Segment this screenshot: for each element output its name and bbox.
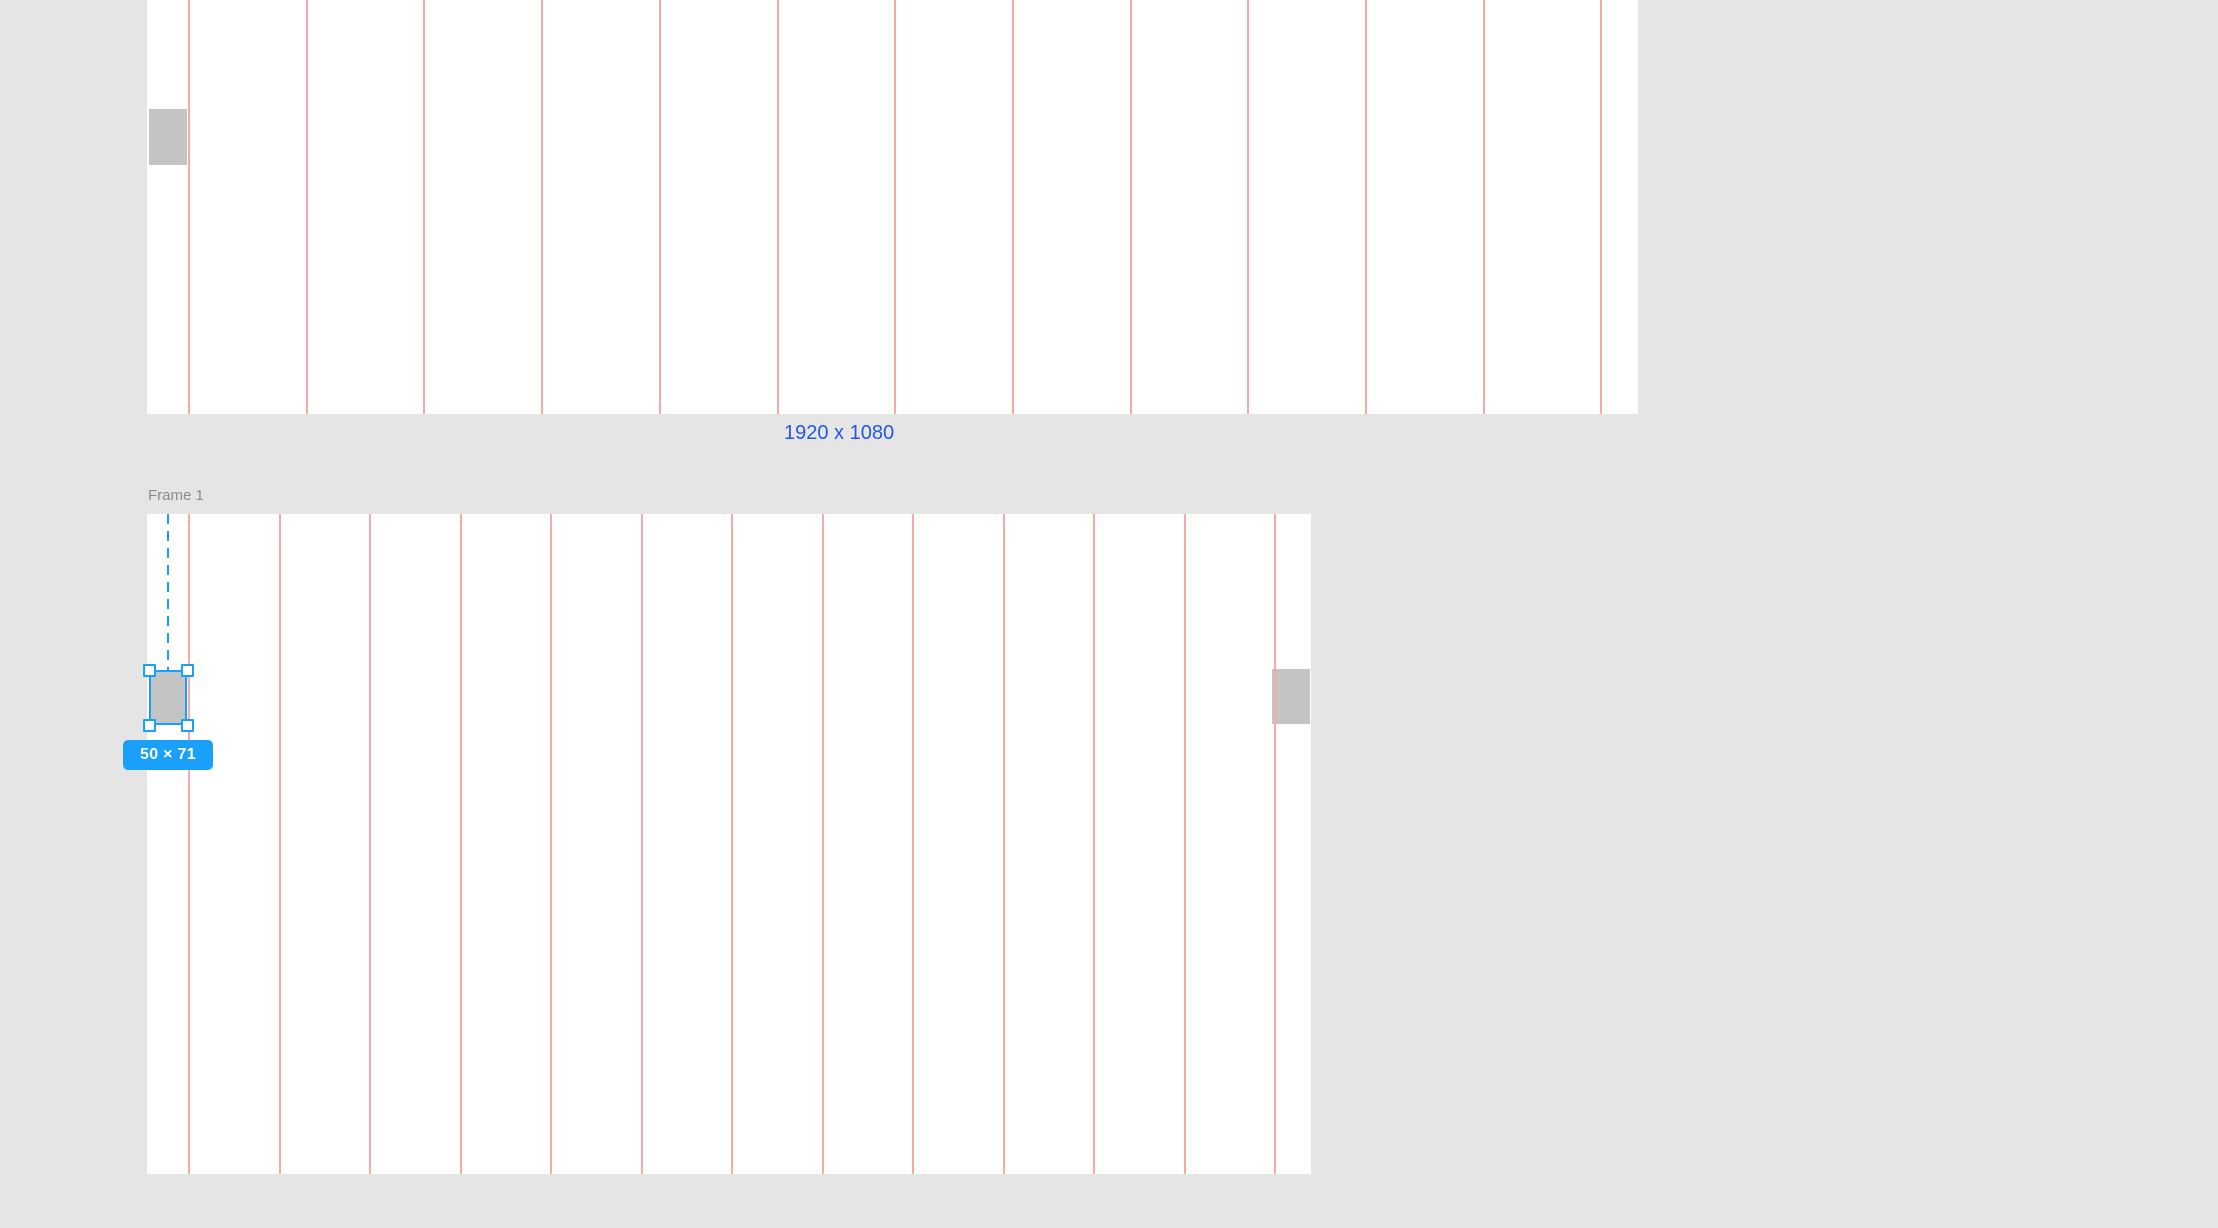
grid-column-line xyxy=(894,0,896,414)
grid-column-line xyxy=(188,514,190,1174)
gray-rectangle[interactable] xyxy=(1272,669,1310,724)
grid-column-line xyxy=(731,514,733,1174)
selection-size-badge: 50 × 71 xyxy=(123,740,213,770)
grid-column-line xyxy=(1012,0,1014,414)
grid-column-line xyxy=(1274,514,1276,1174)
grid-column-line xyxy=(659,0,661,414)
grid-column-line xyxy=(1130,0,1132,414)
grid-column-line xyxy=(1247,0,1249,414)
grid-column-line xyxy=(460,514,462,1174)
frame-size-caption[interactable]: 1920 x 1080 xyxy=(784,421,894,445)
selection-size-text: 50 × 71 xyxy=(140,746,196,764)
snap-guide-line xyxy=(167,514,169,670)
grid-column-line xyxy=(1093,514,1095,1174)
gray-rectangle[interactable] xyxy=(149,109,187,165)
frame-1920x1080[interactable] xyxy=(147,0,1638,414)
grid-column-line xyxy=(641,514,643,1174)
grid-column-line xyxy=(550,514,552,1174)
canvas[interactable]: 1920 x 1080 Frame 1 50 × 71 xyxy=(0,0,2218,1228)
selected-rectangle[interactable] xyxy=(149,670,187,725)
grid-column-line xyxy=(423,0,425,414)
grid-column-line xyxy=(369,514,371,1174)
resize-handle-top-left[interactable] xyxy=(143,664,156,677)
grid-column-line xyxy=(306,0,308,414)
grid-column-line xyxy=(822,514,824,1174)
resize-handle-bottom-left[interactable] xyxy=(143,719,156,732)
frame-1-label[interactable]: Frame 1 xyxy=(148,486,204,505)
grid-column-line xyxy=(777,0,779,414)
grid-column-line xyxy=(1365,0,1367,414)
resize-handle-top-right[interactable] xyxy=(181,664,194,677)
grid-column-line xyxy=(188,0,190,414)
grid-column-line xyxy=(912,514,914,1174)
grid-column-line xyxy=(1483,0,1485,414)
grid-column-line xyxy=(1184,514,1186,1174)
grid-column-line xyxy=(1600,0,1602,414)
resize-handle-bottom-right[interactable] xyxy=(181,719,194,732)
grid-column-line xyxy=(1003,514,1005,1174)
frame-1[interactable] xyxy=(147,514,1311,1174)
grid-column-line xyxy=(279,514,281,1174)
grid-column-line xyxy=(541,0,543,414)
